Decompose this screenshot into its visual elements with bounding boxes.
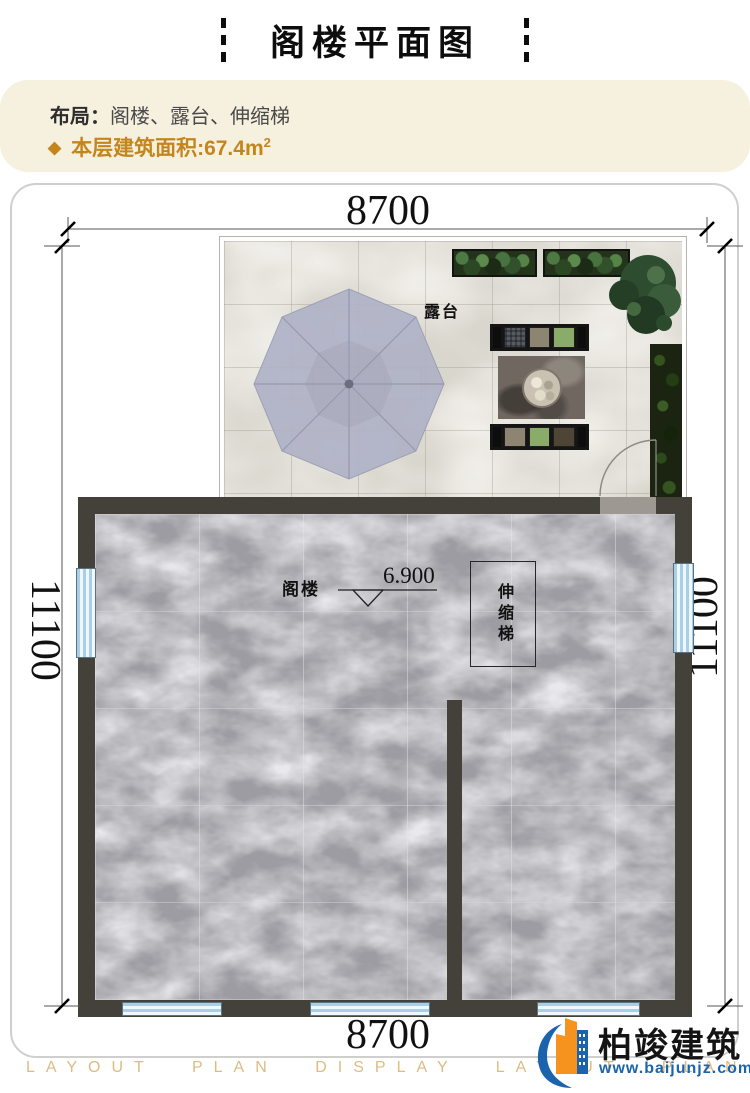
terrace-floor: 露台 [224,241,682,507]
window-bottom-2 [310,1002,430,1016]
brand-url: www.baijunjz.com [599,1060,750,1078]
window-right [673,563,694,653]
stone-table [498,356,585,419]
planter-box-1 [452,249,537,277]
bench-cushion [529,427,551,447]
window-left [76,568,96,658]
area-value: 本层建筑面积:67.4m2 [71,132,271,162]
diamond-icon: ◆ [48,139,61,156]
interior-partition-wall [447,700,462,1000]
bench-cushion [529,327,551,348]
table-centerpiece [522,368,562,408]
page-title-bar: 阁楼平面图 [0,12,750,68]
brand-building-icon [532,1012,596,1090]
bench-armrest [578,327,586,348]
bench-armrest [578,427,586,447]
area-row: ◆ 本层建筑面积:67.4m2 [48,132,271,162]
floor-plan-page: 阁楼平面图 布局：阁楼、露台、伸缩梯 ◆ 本层建筑面积:67.4m2 8700 … [0,0,750,1093]
page-title: 阁楼平面图 [270,15,480,66]
hedge-strip [650,344,682,507]
layout-value: 阁楼、露台、伸缩梯 [110,106,290,128]
bench-armrest [493,327,501,348]
bench-cushion [553,327,575,348]
bench-cushion [553,427,575,447]
tree-icon [606,249,682,345]
bench-armrest [493,427,501,447]
terrace-door-opening [600,497,656,514]
title-dash-left-icon [221,18,226,62]
elevation-value: 6.900 [383,563,435,589]
info-box: 布局：阁楼、露台、伸缩梯 ◆ 本层建筑面积:67.4m2 [0,80,750,172]
bench-top [490,324,589,351]
layout-row: 布局：阁楼、露台、伸缩梯 [50,100,290,129]
terrace-area: 露台 [219,236,687,512]
brand-logo: 柏竣建筑 www.baijunjz.com [532,1008,750,1093]
patio-umbrella-icon [249,284,449,484]
ladder-label: 伸缩梯 [491,583,515,646]
bench-cushion [504,327,526,348]
telescopic-ladder-box: 伸缩梯 [470,561,536,667]
layout-label: 布局： [50,106,110,128]
attic-label: 阁楼 [282,575,320,600]
bench-bottom [490,424,589,450]
dimension-left: 11100 [22,550,66,710]
dimension-top: 8700 [26,190,750,232]
window-bottom-1 [122,1002,222,1016]
terrace-label: 露台 [424,298,460,322]
bench-cushion [504,427,526,447]
title-dash-right-icon [524,18,529,62]
